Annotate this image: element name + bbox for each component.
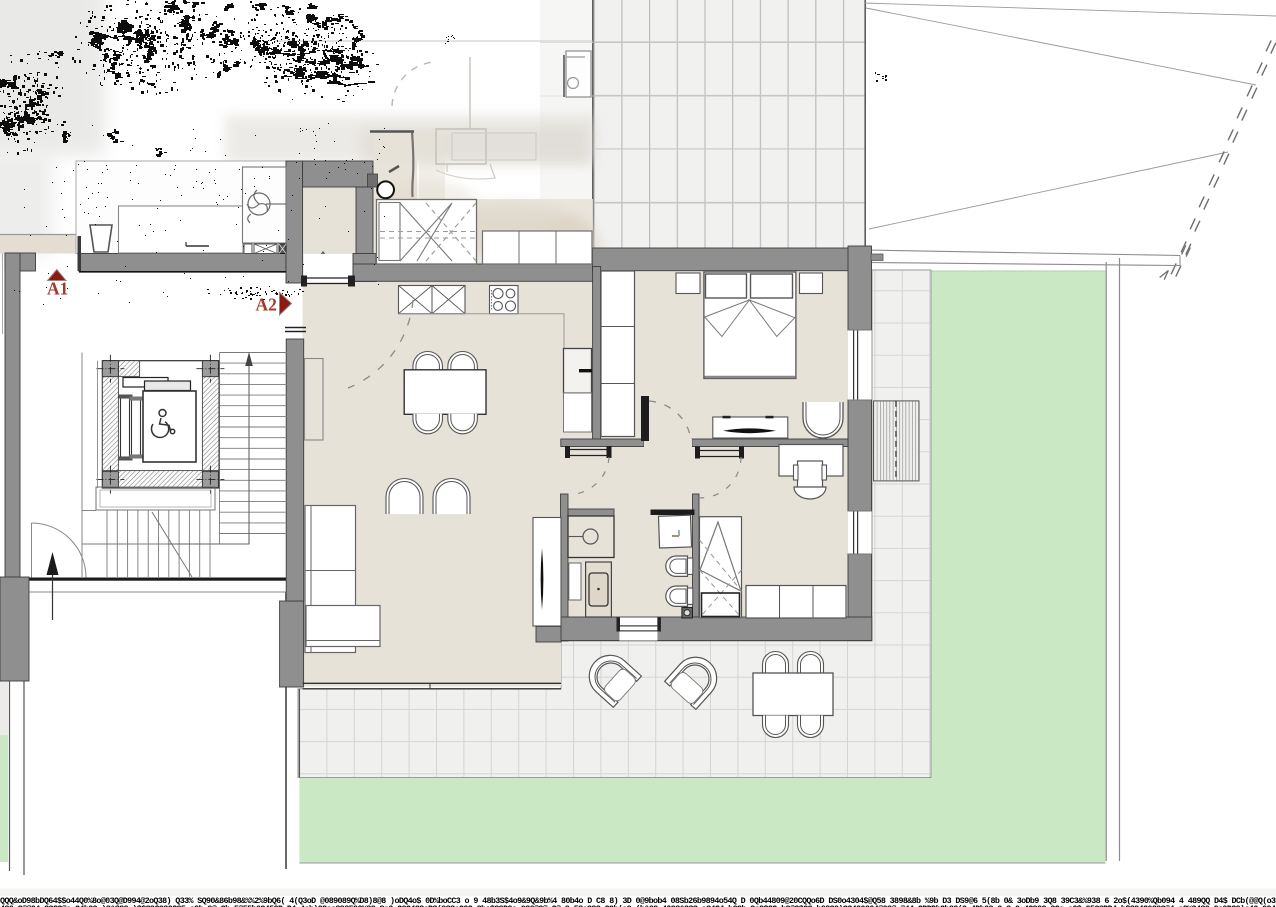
- svg-text:A1: A1: [47, 279, 68, 299]
- svg-text:A2: A2: [256, 295, 277, 315]
